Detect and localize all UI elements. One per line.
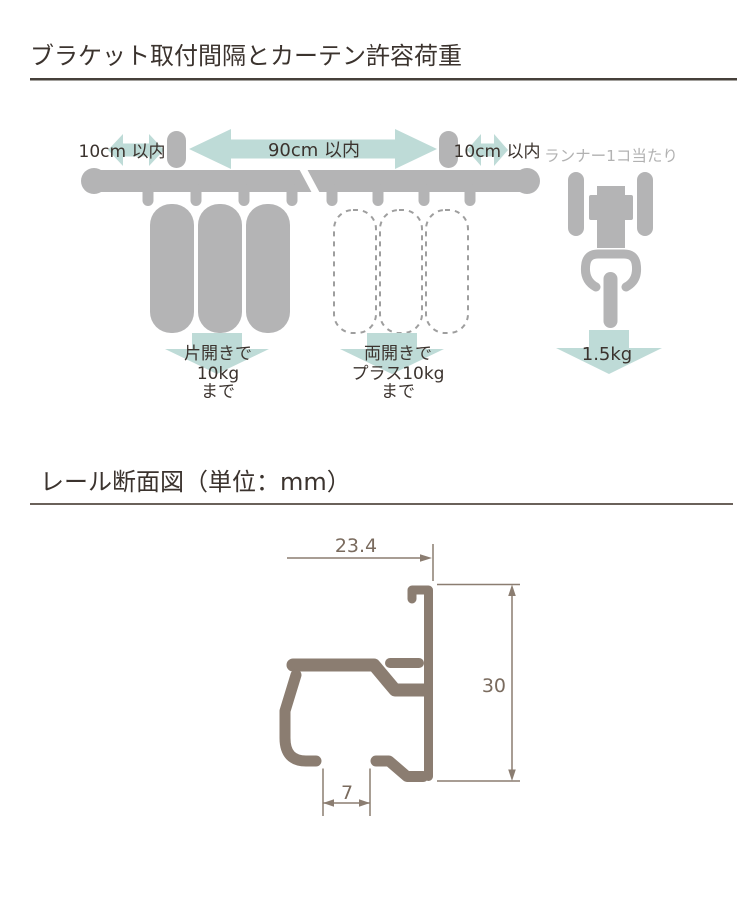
dim-width-value: 23.4 [335,535,377,557]
rail-runner-hook [465,184,476,206]
runner-body-mid [589,195,633,220]
dim-slot-arrowhead-left [323,799,334,807]
curtain-pleat-solid [198,204,242,333]
section1-underline [30,78,737,81]
curtain-dashed [334,210,468,333]
rail-end-cap-right [514,168,540,194]
dim-height-arrowhead-bottom [508,770,516,782]
dim-slot-arrowhead-right [359,799,370,807]
profile-top-arm [293,665,424,690]
section2-title: レール断面図（単位：mm） [40,468,351,496]
rail-runner-hook [239,184,250,206]
dim-height-value: 30 [482,675,506,697]
double-open-label-line3: まで [381,382,415,402]
double-open-label-line2: プラス10kg [352,364,445,384]
curtain-solid [150,204,290,333]
runner-hook [604,272,618,328]
spacing-center-label: 90cm 以内 [268,140,360,161]
runner-side-bar-right [637,172,653,236]
rail-runner-hook [287,184,298,206]
spec-sheet: ブラケット取付間隔とカーテン許容荷重 [0,0,750,902]
dim-width-arrowhead [420,554,432,562]
curtain-pleat-solid [246,204,290,333]
curtain-pleat-solid [150,204,194,333]
bracket-left [167,131,186,168]
rail-end-cap-left [81,168,107,194]
profile-bottom-right [376,761,423,777]
profile-wall-and-top-hook [412,590,429,777]
spacing-right-label: 10cm 以内 [454,142,541,162]
runner-side-bar-left [568,172,584,236]
spacing-left-label: 10cm 以内 [79,142,166,162]
dim-slot-value: 7 [341,782,353,804]
rail-runner-hook [143,184,154,206]
rail-runner-hook [419,184,430,206]
single-open-label-line1: 片開きで [184,344,252,364]
runner-load-label: 1.5kg [582,344,632,365]
double-open-label-line1: 両開きで [364,344,432,364]
profile-left-side [285,675,316,761]
curtain-pleat-dashed [380,210,422,333]
runner-caption: ランナー1コ当たり [544,147,678,165]
runner-icon [568,172,653,248]
runner-body-low [597,218,625,248]
section1-title: ブラケット取付間隔とカーテン許容荷重 [30,42,462,70]
rail-runner-hook [373,184,384,206]
curtain-pleat-dashed [426,210,468,333]
single-open-label-line3: まで [201,382,235,402]
spec-sheet-canvas: ブラケット取付間隔とカーテン許容荷重 [0,0,750,902]
rail-profile [285,590,429,777]
curtain-pleat-dashed [334,210,376,333]
rail-runner-hook [327,184,338,206]
rail-runner-hook [191,184,202,206]
single-open-label-line2: 10kg [197,364,239,384]
dim-height-arrowhead-top [508,585,516,597]
section2-underline [30,503,733,505]
